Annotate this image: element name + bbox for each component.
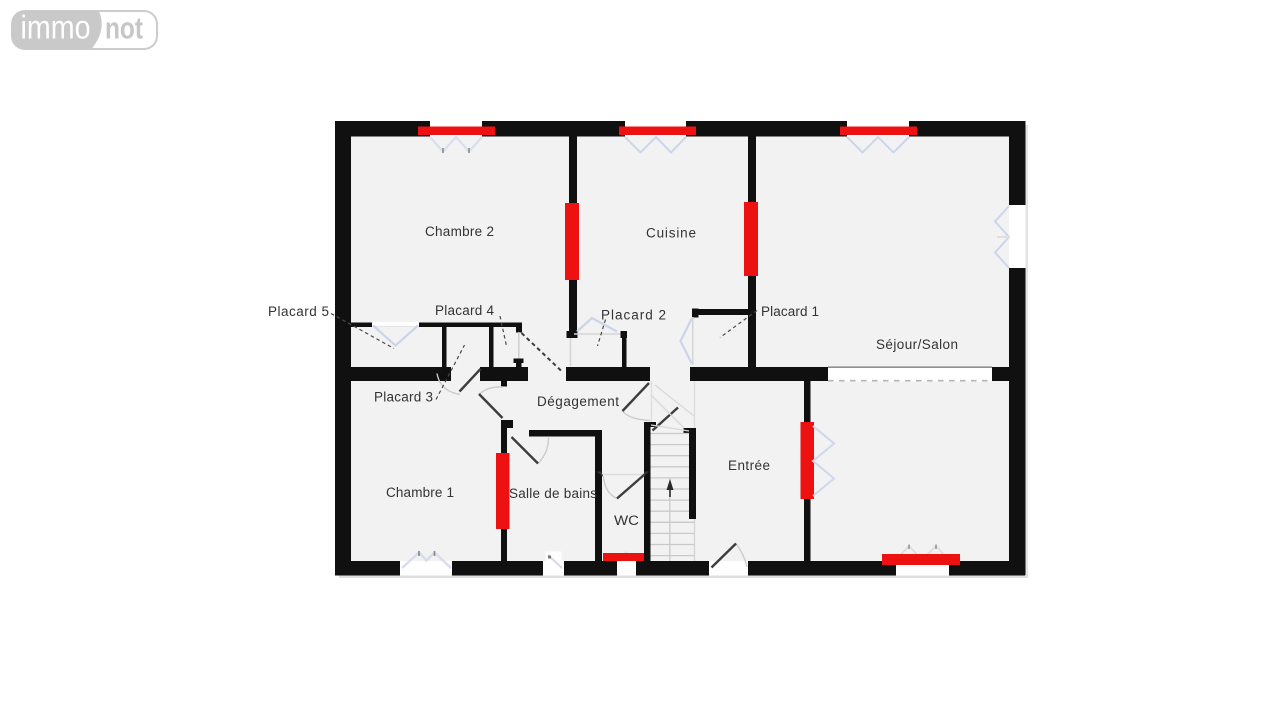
svg-text:Chambre 2: Chambre 2 [425,224,494,239]
svg-text:WC: WC [614,513,639,528]
svg-text:Placard 1: Placard 1 [761,304,819,319]
svg-text:Cuisine: Cuisine [646,226,696,241]
svg-text:immo: immo [21,9,91,46]
svg-text:Salle de bains: Salle de bains [509,486,597,501]
svg-text:Placard 2: Placard 2 [601,308,666,323]
svg-text:Placard 5: Placard 5 [268,304,329,319]
svg-text:Placard 4: Placard 4 [435,303,494,318]
svg-text:Placard 3: Placard 3 [374,390,433,405]
svg-text:not: not [105,11,143,46]
svg-text:Entrée: Entrée [728,458,770,473]
svg-text:Dégagement: Dégagement [537,394,619,409]
svg-text:Séjour/Salon: Séjour/Salon [876,337,958,352]
svg-text:Chambre 1: Chambre 1 [386,485,454,500]
